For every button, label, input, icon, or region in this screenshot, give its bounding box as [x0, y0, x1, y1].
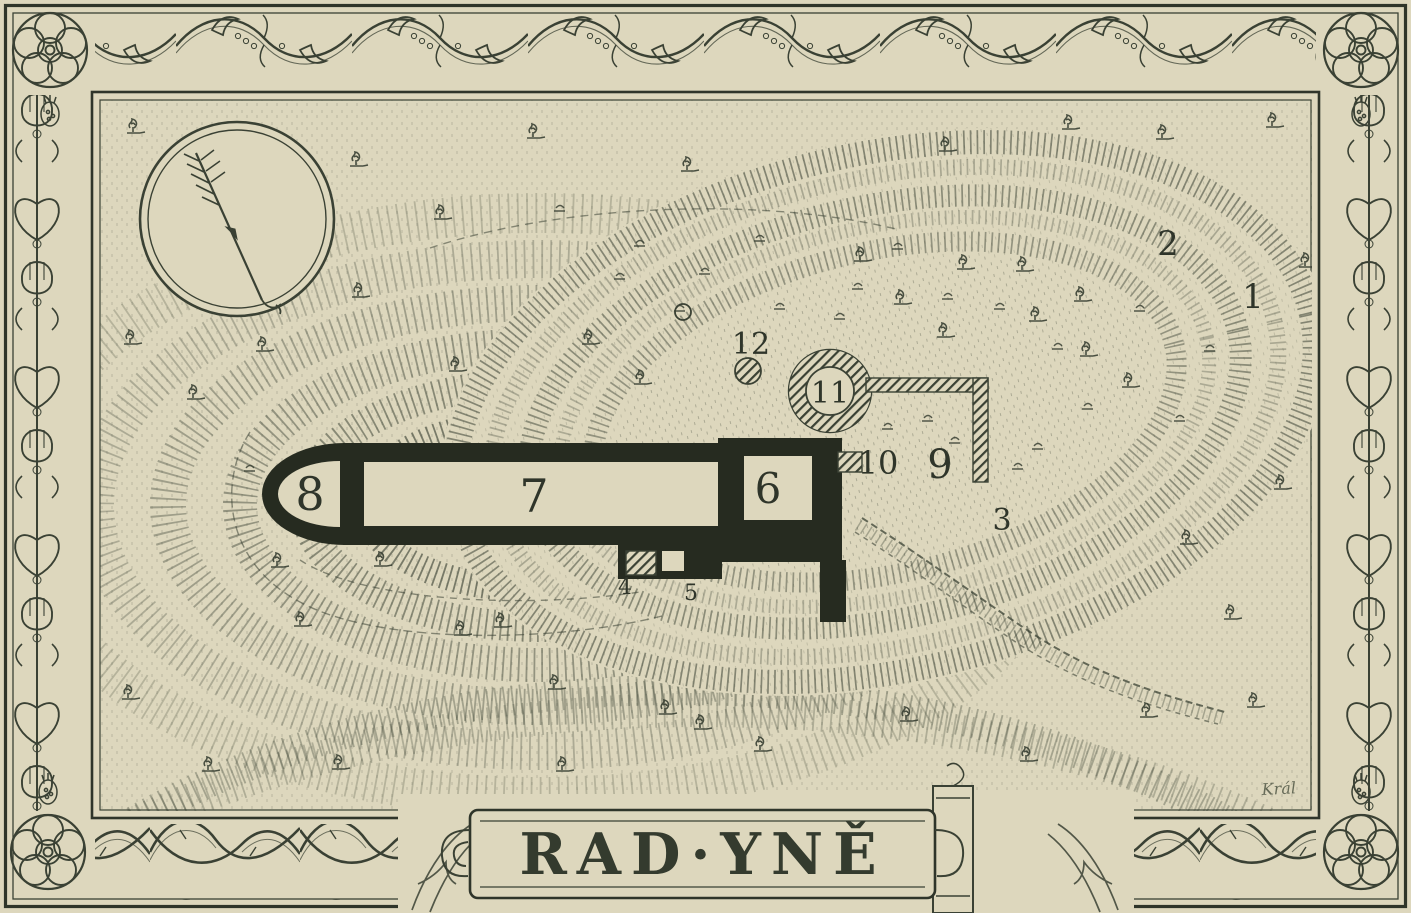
border-right-floral [1323, 95, 1397, 811]
border-top-vine [95, 14, 1316, 88]
map-label-11: 11 [811, 376, 849, 411]
gate-passage [662, 551, 684, 571]
rose-icon [1324, 815, 1398, 889]
engraved-map-canvas: 1 2 3 4 5 6 7 8 9 10 11 12 Král RAD·YNĚ [0, 0, 1411, 913]
radyne-castle-plan-engraving: 1 2 3 4 5 6 7 8 9 10 11 12 Král RAD·YNĚ [0, 0, 1411, 913]
map-label-12: 12 [732, 327, 770, 362]
artist-signature: Král [1260, 778, 1296, 799]
map-label-8: 8 [295, 467, 324, 521]
rose-icon [13, 13, 87, 87]
east-wall-stub [820, 560, 846, 622]
compass-rose [140, 122, 334, 316]
map-label-7: 7 [519, 469, 548, 523]
hatched-gate-icon [626, 551, 656, 575]
map-label-1: 1 [1242, 277, 1264, 317]
border-left-floral [14, 95, 88, 811]
scroll-roll-icon [933, 763, 973, 913]
map-label-10: 10 [858, 444, 899, 482]
map-label-4: 4 [618, 575, 632, 600]
map-label-5: 5 [684, 581, 698, 606]
map-label-2: 2 [1157, 224, 1179, 264]
map-label-3: 3 [992, 503, 1011, 538]
rose-icon [1324, 13, 1398, 87]
castle-title: RAD·YNĚ [519, 820, 886, 888]
compass-circle [140, 122, 334, 316]
rose-icon [11, 815, 85, 889]
map-label-6: 6 [755, 464, 782, 513]
map-label-9: 9 [927, 442, 952, 488]
